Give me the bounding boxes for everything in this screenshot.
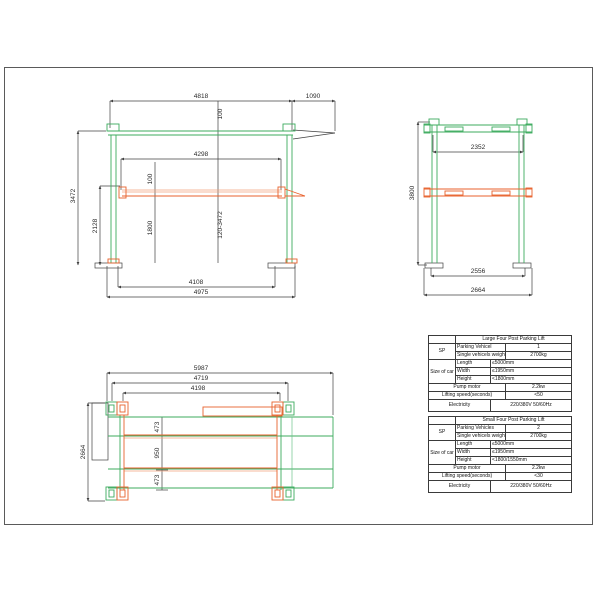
table-row: Pump motor 2.2kw bbox=[429, 465, 572, 473]
parking-label-cell: Parking Vehicel bbox=[456, 344, 506, 352]
lifting-value-cell: <50 bbox=[506, 392, 572, 400]
sp-cell: SP bbox=[429, 425, 456, 441]
dim-3472: 3472 bbox=[70, 188, 77, 203]
dim-2128: 2128 bbox=[92, 218, 99, 233]
table-row: Size of car Length ≤5000mm bbox=[429, 360, 572, 368]
lifting-label-cell: Lifting speed(seconds) bbox=[429, 473, 506, 481]
side-view: 2352 3800 2556 2664 bbox=[409, 119, 532, 295]
length-label-cell: Length bbox=[456, 441, 491, 449]
table-row: Lifting speed(seconds) <50 bbox=[429, 392, 572, 400]
electricity-value-cell: 220/380V 50/60Hz bbox=[491, 481, 572, 493]
electricity-label-cell: Electricity bbox=[429, 400, 491, 412]
dim-473-top: 473 bbox=[154, 421, 161, 432]
size-of-car-cell: Size of car bbox=[429, 441, 456, 465]
dim-5987: 5987 bbox=[194, 365, 209, 372]
electricity-value-cell: 220/380V 50/60Hz bbox=[491, 400, 572, 412]
table-row: Pump motor 2.2kw bbox=[429, 384, 572, 392]
dim-2664-top: 2664 bbox=[80, 444, 87, 459]
lifting-label-cell: Lifting speed(seconds) bbox=[429, 392, 506, 400]
height-value-cell: <1800mm bbox=[491, 376, 572, 384]
dim-3800: 3800 bbox=[409, 185, 416, 200]
weight-value-cell: 2700kg bbox=[506, 352, 572, 360]
dim-4719: 4719 bbox=[194, 375, 209, 382]
table-row: Electricity 220/380V 50/60Hz bbox=[429, 400, 572, 412]
table-row: Electricity 220/380V 50/60Hz bbox=[429, 481, 572, 493]
weight-label-cell: Single vehicels weight(kg) bbox=[456, 433, 506, 441]
dim-4198: 4198 bbox=[191, 385, 206, 392]
dim-4818: 4818 bbox=[194, 93, 209, 100]
length-label-cell: Length bbox=[456, 360, 491, 368]
height-value-cell: <1800/1550mm bbox=[491, 457, 572, 465]
parking-value-cell: 1 bbox=[506, 344, 572, 352]
table-corner-cell bbox=[429, 336, 456, 344]
dim-100-mid: 100 bbox=[147, 173, 154, 184]
dim-473-bottom: 473 bbox=[154, 474, 161, 485]
length-value-cell: ≤5000mm bbox=[491, 441, 572, 449]
dim-4108: 4108 bbox=[189, 279, 204, 286]
width-value-cell: ≤1950mm bbox=[491, 449, 572, 457]
pump-value-cell: 2.2kw bbox=[506, 465, 572, 473]
small-lift-spec-table: Small Four Post Parking Lift SP Parking … bbox=[428, 416, 572, 493]
pump-label-cell: Pump motor bbox=[429, 465, 506, 473]
dim-1800: 1800 bbox=[147, 220, 154, 235]
front-view: 4818 1090 100 4298 3472 2128 100 1800 12… bbox=[70, 93, 335, 297]
dim-100-top: 100 bbox=[217, 108, 224, 119]
dim-950: 950 bbox=[154, 447, 161, 458]
dim-2664-side: 2664 bbox=[471, 287, 486, 294]
sp-cell: SP bbox=[429, 344, 456, 360]
table-row: SP Parking Vehicles 2 bbox=[429, 425, 572, 433]
dim-4298: 4298 bbox=[194, 151, 209, 158]
height-label-cell: Height bbox=[456, 457, 491, 465]
cad-drawing-canvas: 4818 1090 100 4298 3472 2128 100 1800 12… bbox=[0, 0, 600, 600]
parking-value-cell: 2 bbox=[506, 425, 572, 433]
height-label-cell: Height bbox=[456, 376, 491, 384]
dim-2556: 2556 bbox=[471, 268, 486, 275]
table-row: Small Four Post Parking Lift bbox=[429, 417, 572, 425]
dim-1090: 1090 bbox=[306, 93, 321, 100]
pump-label-cell: Pump motor bbox=[429, 384, 506, 392]
weight-label-cell: Single vehicels weight(kg) bbox=[456, 352, 506, 360]
table-row: Lifting speed(seconds) <30 bbox=[429, 473, 572, 481]
dim-4975: 4975 bbox=[194, 289, 209, 296]
width-value-cell: ≤1950mm bbox=[491, 368, 572, 376]
table-row: Large Four Post Parking Lift bbox=[429, 336, 572, 344]
electricity-label-cell: Electricity bbox=[429, 481, 491, 493]
table-title: Large Four Post Parking Lift bbox=[456, 336, 572, 344]
dim-travel-range: 120-3472 bbox=[217, 211, 224, 239]
top-view: 5987 4719 4198 2664 473 950 473 bbox=[80, 365, 333, 501]
width-label-cell: Width bbox=[456, 449, 491, 457]
spec-tables: Large Four Post Parking Lift SP Parking … bbox=[428, 335, 571, 493]
width-label-cell: Width bbox=[456, 368, 491, 376]
table-row: Size of car Length ≤5000mm bbox=[429, 441, 572, 449]
table-corner-cell bbox=[429, 417, 456, 425]
length-value-cell: ≤5000mm bbox=[491, 360, 572, 368]
pump-value-cell: 2.2kw bbox=[506, 384, 572, 392]
large-lift-spec-table: Large Four Post Parking Lift SP Parking … bbox=[428, 335, 572, 412]
dim-2352: 2352 bbox=[471, 144, 486, 151]
weight-value-cell: 2700kg bbox=[506, 433, 572, 441]
lifting-value-cell: <30 bbox=[506, 473, 572, 481]
table-title: Small Four Post Parking Lift bbox=[456, 417, 572, 425]
size-of-car-cell: Size of car bbox=[429, 360, 456, 384]
table-row: SP Parking Vehicel 1 bbox=[429, 344, 572, 352]
parking-label-cell: Parking Vehicles bbox=[456, 425, 506, 433]
